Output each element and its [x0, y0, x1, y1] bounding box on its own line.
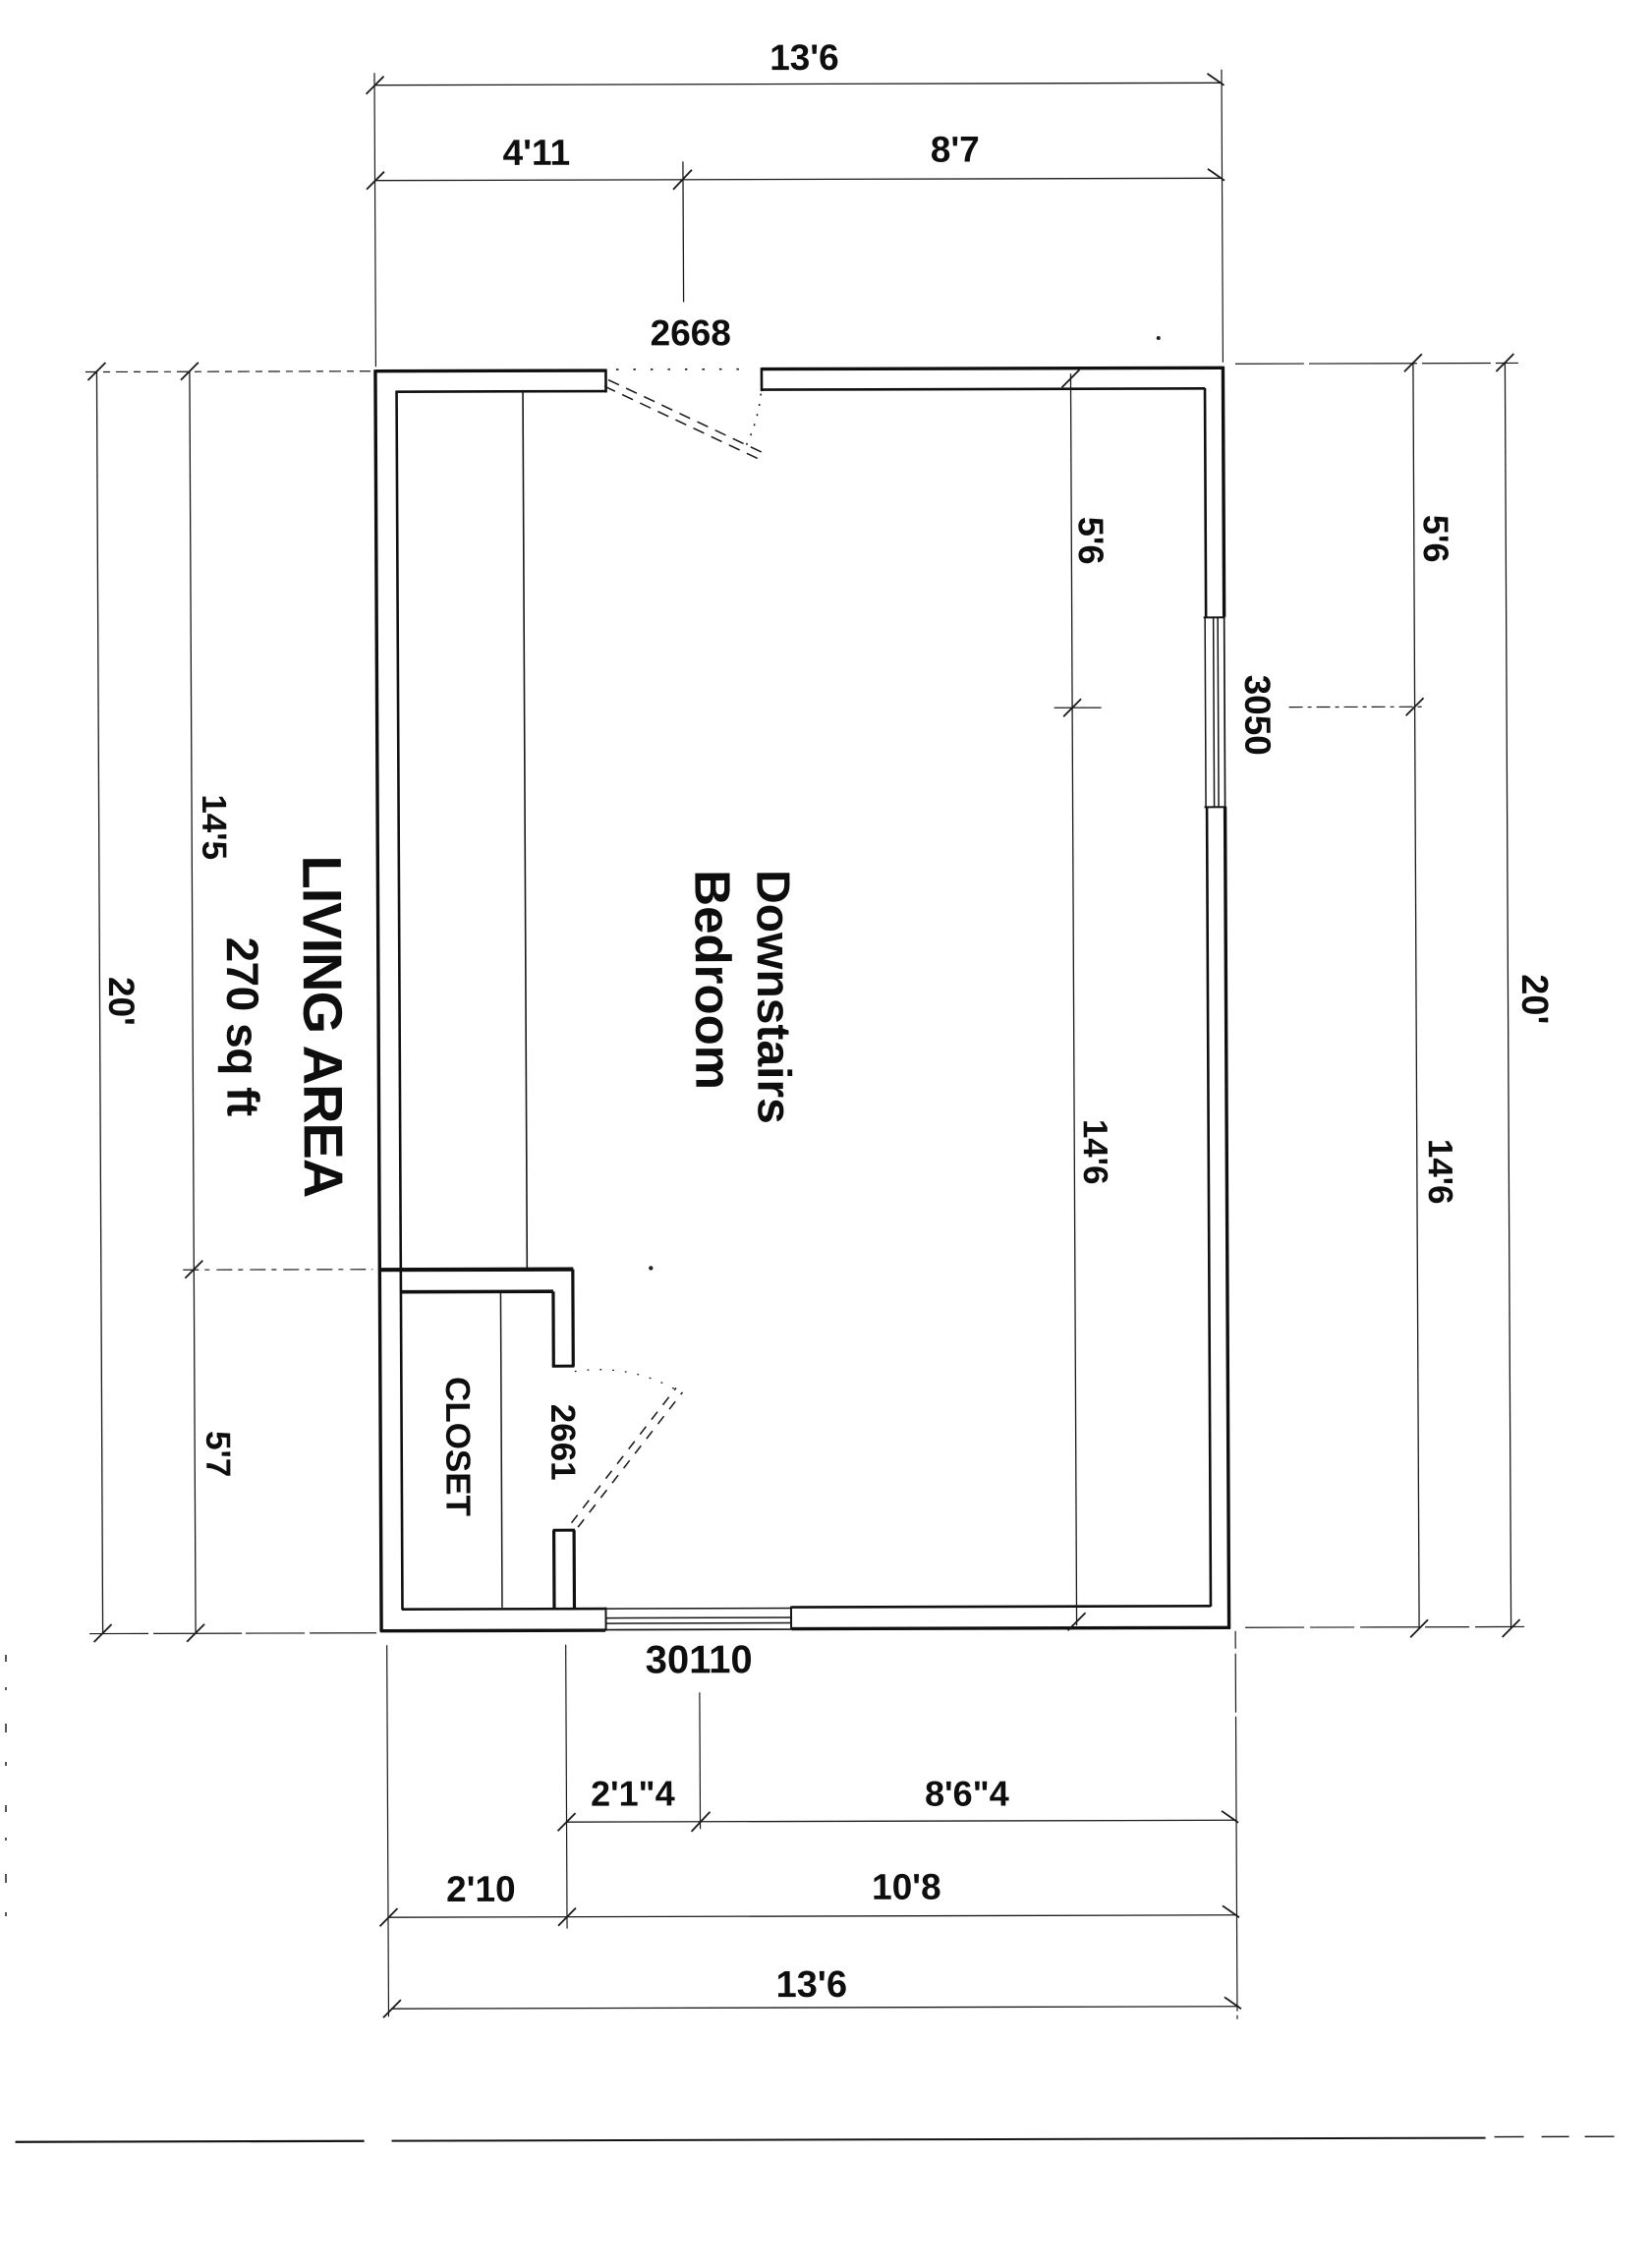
svg-text:8'6"4: 8'6"4 — [925, 1773, 1009, 1813]
svg-text:LIVING AREA: LIVING AREA — [291, 855, 355, 1197]
svg-text:5'6: 5'6 — [1071, 517, 1111, 565]
svg-text:2661: 2661 — [543, 1404, 582, 1481]
svg-text:CLOSET: CLOSET — [438, 1377, 478, 1516]
svg-text:5'6: 5'6 — [1416, 515, 1456, 563]
svg-text:20': 20' — [101, 977, 142, 1026]
svg-text:10'8: 10'8 — [872, 1867, 941, 1907]
svg-text:14'6: 14'6 — [1076, 1119, 1114, 1185]
svg-text:2668: 2668 — [651, 312, 732, 353]
svg-text:14'5: 14'5 — [195, 794, 233, 860]
svg-text:2'1"4: 2'1"4 — [591, 1773, 675, 1813]
svg-text:5'7: 5'7 — [199, 1431, 237, 1477]
svg-text:Bedroom: Bedroom — [684, 870, 741, 1090]
svg-text:270 sq ft: 270 sq ft — [217, 936, 269, 1115]
svg-text:2'10: 2'10 — [446, 1869, 516, 1909]
svg-text:3050: 3050 — [1237, 674, 1278, 755]
svg-text:Downstairs: Downstairs — [746, 870, 799, 1124]
svg-text:20': 20' — [1513, 974, 1555, 1024]
svg-text:8'7: 8'7 — [931, 129, 980, 169]
svg-text:13'6: 13'6 — [776, 1964, 848, 2006]
svg-text:14'6: 14'6 — [1421, 1139, 1459, 1205]
svg-text:13'6: 13'6 — [769, 37, 839, 78]
svg-text:30110: 30110 — [646, 1638, 753, 1681]
svg-text:4'11: 4'11 — [503, 133, 571, 173]
